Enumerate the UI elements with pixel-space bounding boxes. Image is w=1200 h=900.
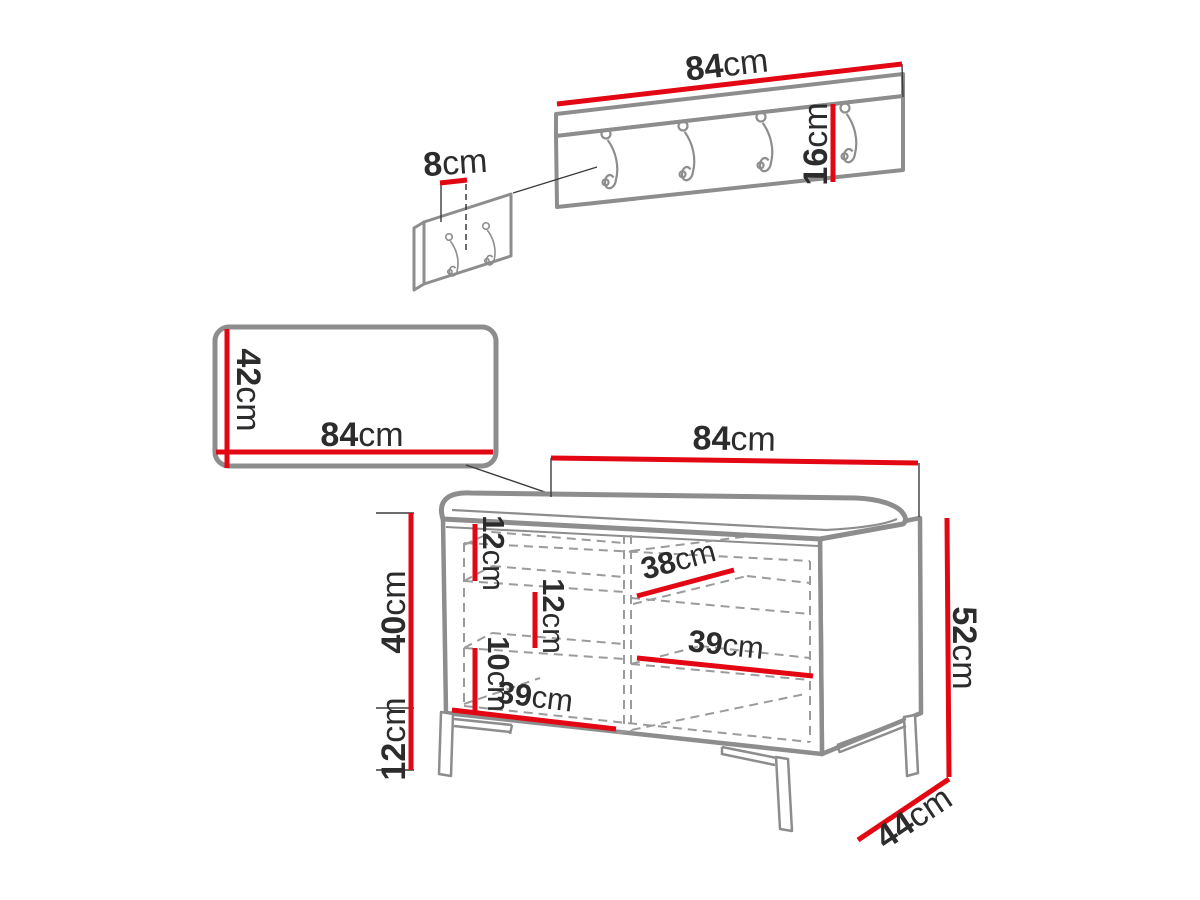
bench-width-label: 84cm [692,419,776,458]
extension-line [902,64,903,97]
bench-leg-back-right [904,715,918,776]
compartment-top-label: 12cm [476,515,511,591]
bench-drawing: 84cm 52cm 44cm 40cm 12cm 12cm 12cm 10cm … [375,419,983,857]
dimension-line-bench-width [551,458,918,463]
diagram-canvas: 84cm 16cm 8cm 42cm 84cm [0,0,1200,900]
mirror-drawing: 42cm 84cm [215,327,571,501]
compartment-middle-label: 12cm [536,578,571,654]
bench-leg-height-label: 12cm [375,697,413,780]
bench-height-label: 52cm [945,606,983,689]
bench-leg-front-left [439,712,453,776]
hook-panel-front-face [424,194,511,284]
bench-leg-front-right [776,757,792,831]
furniture-dimension-diagram: 84cm 16cm 8cm 42cm 84cm [0,0,1200,900]
bench-body-height-label: 40cm [375,570,413,653]
coat-rack-drawing: 84cm 16cm [556,41,903,207]
bench-depth-label: 44cm [869,779,959,857]
hook-spacing-label: 8cm [422,142,489,184]
rack-height-label: 16cm [797,102,835,185]
mirror-height-label: 42cm [229,348,267,431]
mirror-width-label: 84cm [320,416,403,454]
